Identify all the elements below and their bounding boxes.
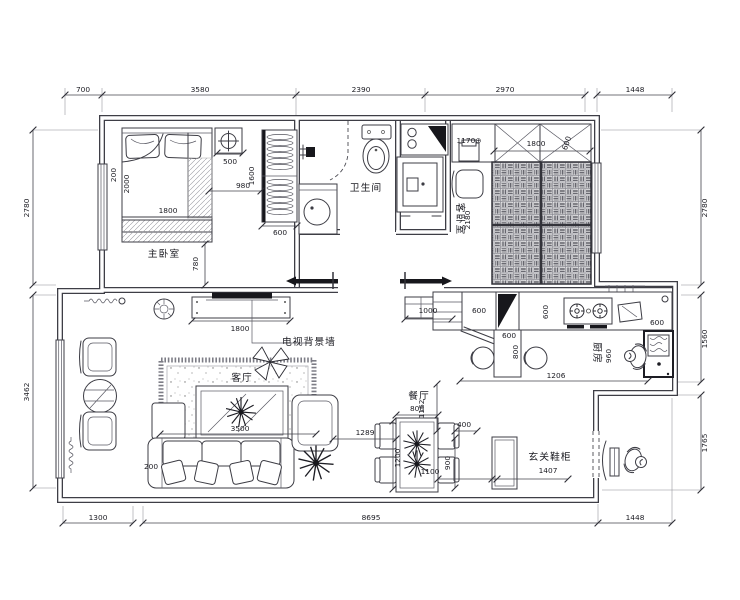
dim-960: 960: [604, 349, 613, 363]
label-master-bedroom: 主卧室: [148, 247, 180, 260]
dim-bed-1800: 1800: [159, 206, 178, 215]
person-at-entry: [622, 446, 649, 476]
dim-bottom-8695: 8695: [362, 513, 381, 522]
person-in-kitchen: [623, 343, 647, 370]
bathroom-toilet: [362, 125, 391, 173]
dim-1162: 1162: [417, 400, 426, 419]
armchair-right: [292, 395, 338, 451]
dim-kitchen-600d: 600: [502, 331, 516, 340]
bathroom-washing-machine: [299, 184, 337, 234]
label-dining-room: 餐厅: [408, 389, 430, 402]
dim-top-700: 700: [76, 85, 90, 94]
dim-sofa-200: 200: [144, 462, 158, 471]
kitchen-sink: [644, 331, 673, 377]
shoe-cabinet: [492, 437, 517, 489]
niche-basin-counter: [401, 124, 448, 155]
guest-bed: [492, 162, 591, 284]
dim-kitchen-600b: 600: [541, 305, 550, 319]
dim-1289: 1289: [356, 428, 375, 437]
dim-1200: 1200: [393, 448, 402, 467]
armchair-left-2: [80, 412, 117, 450]
kitchen-fridge: [496, 292, 519, 330]
label-guest-bedroom: 客卧室: [454, 203, 467, 235]
master-nightstand-lamp: [215, 128, 242, 154]
dim-top-2390: 2390: [352, 85, 371, 94]
dim-kitchen-600c: 600: [650, 318, 664, 327]
master-wardrobe: [262, 130, 297, 222]
label-entry-shoe-cabinet: 玄关鞋柜: [528, 450, 571, 463]
dim-top-3580: 3580: [191, 85, 210, 94]
dim-780: 780: [191, 257, 200, 271]
dim-1170: 1170⊕: [456, 136, 481, 145]
master-bed: [122, 128, 212, 242]
dim-guest-1800: 1800: [527, 139, 546, 148]
window-master-left: [98, 164, 107, 250]
sliding-door-guest: [400, 272, 452, 289]
floor-plan-drawing: 700 3580 2390 2970 1448 2780 3462 2780 1…: [0, 0, 740, 600]
dim-2000: 2000: [122, 174, 131, 193]
bathroom-shower-head: [300, 145, 315, 159]
dim-1600: 1600: [247, 166, 256, 185]
dim-3500: 3500: [231, 424, 250, 433]
dim-left-3462: 3462: [22, 383, 31, 402]
entry-door-opening: [591, 431, 601, 478]
dim-1407: 1407: [539, 466, 558, 475]
dim-left-2780: 2780: [22, 198, 31, 217]
dim-400: 400: [457, 420, 471, 429]
window-living-left: [56, 340, 64, 478]
dim-1206: 1206: [547, 371, 566, 380]
dim-top-1448: 1448: [626, 85, 645, 94]
sliding-door-master: [286, 272, 338, 289]
lantern-decor: [154, 299, 174, 319]
dim-1000: 1000: [419, 306, 438, 315]
dim-bottom-1448: 1448: [626, 513, 645, 522]
dim-top-2970: 2970: [496, 85, 515, 94]
label-living-room: 客厅: [231, 371, 253, 384]
tv-cabinet: [192, 293, 290, 319]
tea-table-round: [84, 380, 117, 413]
guest-chair: [452, 170, 483, 198]
entry-door-leaf: [603, 441, 620, 480]
armchair-left-1: [80, 338, 117, 376]
window-guest-right: [592, 163, 601, 253]
dining-table: [396, 418, 438, 492]
dim-1100: 1100: [421, 467, 440, 476]
dim-bottom-1300: 1300: [89, 513, 108, 522]
dim-tv-1800: 1800: [231, 324, 250, 333]
label-bathroom: 卫生间: [350, 181, 382, 194]
label-tv-wall: 电视背景墙: [282, 335, 336, 348]
dim-right-1765: 1765: [700, 433, 709, 452]
bathroom-door-swing: [330, 121, 348, 180]
label-kitchen: 厨房: [591, 342, 604, 364]
dim-right-1560: 1560: [700, 329, 709, 348]
dim-500: 500: [223, 157, 237, 166]
dim-right-2780: 2780: [700, 198, 709, 217]
floor-plan-page: 700 3580 2390 2970 1448 2780 3462 2780 1…: [0, 0, 740, 600]
dim-200: 200: [109, 168, 118, 182]
dim-ward-600: 600: [273, 228, 287, 237]
niche-washer: [397, 157, 443, 216]
kitchen-cabinets-left: [433, 292, 496, 330]
dim-bar-800: 800: [511, 345, 520, 359]
dim-kitchen-600a: 600: [472, 306, 486, 315]
dim-900: 900: [443, 456, 452, 470]
